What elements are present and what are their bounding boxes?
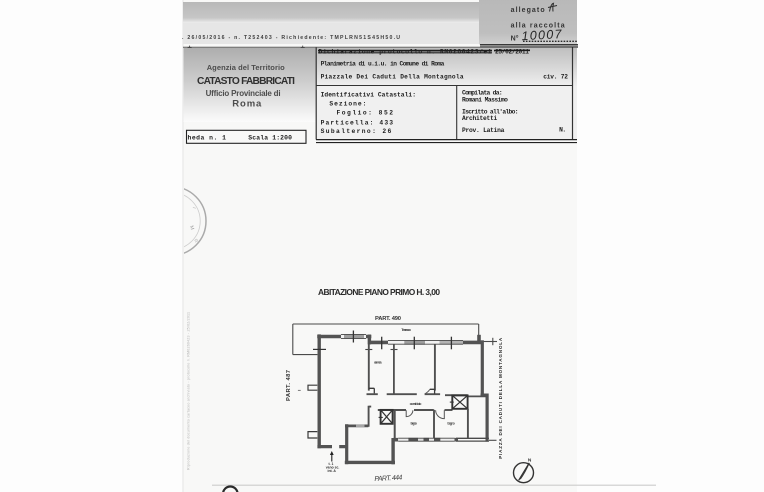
svg-text:Planimetria di u.i.u. in Comun: Planimetria di u.i.u. in Comune di Roma bbox=[321, 61, 445, 68]
svg-text:Subalterno: 26: Subalterno: 26 bbox=[321, 128, 392, 135]
svg-text:Sezione:: Sezione: bbox=[329, 101, 366, 108]
svg-text:Agenzia del Territorio: Agenzia del Territorio bbox=[207, 63, 285, 72]
svg-text:Dichiarazione protocollo n. RM: Dichiarazione protocollo n. RM0260423/e1 bbox=[319, 48, 492, 55]
svg-text:int. A: int. A bbox=[328, 469, 337, 473]
svg-text:bagno: bagno bbox=[447, 422, 455, 426]
svg-text:25/02/2011: 25/02/2011 bbox=[495, 48, 529, 55]
svg-text:heda n. 1: heda n. 1 bbox=[188, 135, 227, 142]
svg-text:Architetti: Architetti bbox=[462, 115, 498, 122]
svg-text:. 26/05/2016 - n. T252403 - Ri: . 26/05/2016 - n. T252403 - Richiedente:… bbox=[182, 35, 400, 41]
svg-text:Roma: Roma bbox=[232, 99, 262, 110]
svg-text:ABITAZIONE PIANO PRIMO H. 3,00: ABITAZIONE PIANO PRIMO H. 3,00 bbox=[318, 287, 440, 297]
svg-text:Ufficio Provinciale di: Ufficio Provinciale di bbox=[206, 89, 281, 98]
svg-text:corridoio: corridoio bbox=[410, 402, 423, 406]
svg-text:Riproduzione del documento car: Riproduzione del documento cartaceo arch… bbox=[187, 312, 191, 470]
svg-text:N: N bbox=[528, 458, 532, 464]
svg-text:Piazzale Dei Caduti Della Mont: Piazzale Dei Caduti Della Montagnola bbox=[321, 73, 464, 80]
svg-text:Scala 1:200: Scala 1:200 bbox=[248, 135, 292, 142]
svg-text:camera: camera bbox=[374, 361, 383, 365]
svg-text:Terrazzo: Terrazzo bbox=[401, 328, 411, 332]
svg-text:PART. 490: PART. 490 bbox=[375, 316, 401, 322]
svg-text:Romani Massimo: Romani Massimo bbox=[462, 96, 508, 103]
svg-text:PART. 444: PART. 444 bbox=[374, 475, 402, 483]
svg-text:Prov. Latina: Prov. Latina bbox=[462, 127, 505, 134]
svg-text:CATASTO FABBRICATI: CATASTO FABBRICATI bbox=[197, 76, 295, 87]
svg-text:N.: N. bbox=[559, 127, 566, 134]
svg-text:N°: N° bbox=[511, 35, 519, 43]
svg-text:Identificativi Catastali:: Identificativi Catastali: bbox=[321, 92, 416, 99]
svg-text:bagno: bagno bbox=[411, 421, 418, 425]
svg-text:Compilata da:: Compilata da: bbox=[462, 89, 503, 96]
svg-text:PART. 487: PART. 487 bbox=[286, 370, 292, 401]
svg-text:civ. 72: civ. 72 bbox=[543, 73, 568, 80]
svg-text:Foglio: 852: Foglio: 852 bbox=[337, 110, 394, 117]
svg-text:PIAZZA DEI CADUTI DELLA MONTAG: PIAZZA DEI CADUTI DELLA MONTAGNOLA bbox=[498, 337, 503, 459]
svg-text:Particella: 433: Particella: 433 bbox=[321, 119, 394, 126]
svg-text:allegato: allegato bbox=[511, 7, 545, 14]
